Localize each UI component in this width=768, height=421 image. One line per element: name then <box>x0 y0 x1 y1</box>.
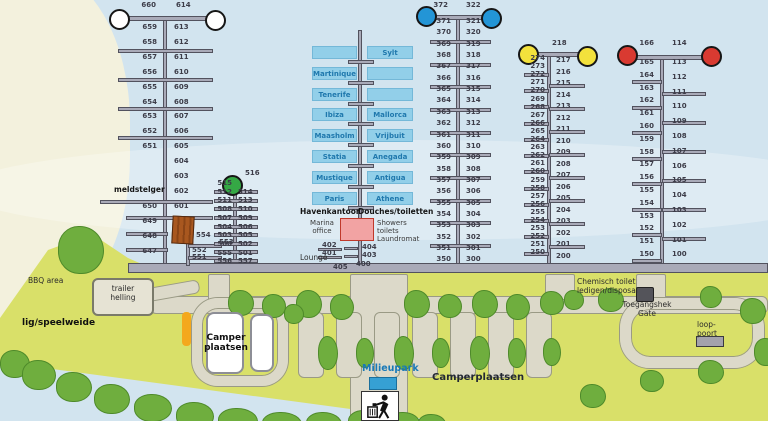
tree <box>432 338 450 368</box>
berth-number: 110 <box>672 103 694 110</box>
berth-number: 361 <box>429 132 451 139</box>
berth-number: 370 <box>429 29 451 36</box>
pier-names-finger <box>348 143 374 147</box>
berth-number: 256 <box>523 201 545 208</box>
berth-number: 152 <box>632 225 654 232</box>
tree <box>56 372 92 402</box>
label-showers: Showers toilets Laundromat <box>377 219 419 243</box>
orange-marker <box>182 312 191 346</box>
berth-name-box: Athene <box>367 192 413 205</box>
berth-number: 158 <box>632 149 654 156</box>
berth-number: 513 <box>238 197 260 204</box>
pier-100-finger <box>632 182 662 186</box>
berth-number: 213 <box>556 103 578 110</box>
pier-names-finger <box>348 81 374 85</box>
tree <box>754 338 768 366</box>
berth-number: 155 <box>632 187 654 194</box>
tree <box>22 360 56 390</box>
berth-number: 502 <box>238 241 260 248</box>
berth-number: 254 <box>523 217 545 224</box>
berth-number: 104 <box>672 192 694 199</box>
berth-number: 209 <box>556 149 578 156</box>
berth-number: 369 <box>429 41 451 48</box>
berth-number: 366 <box>429 75 451 82</box>
label-berth-553: 553 <box>219 239 234 246</box>
tree <box>438 294 462 318</box>
berth-number: 613 <box>174 24 196 31</box>
berth-number: 321 <box>466 18 488 25</box>
label-berth-401: 401 <box>322 250 337 257</box>
berth-number: 508 <box>210 206 232 213</box>
harbor-office-building <box>340 218 374 241</box>
berth-number: 501 <box>238 250 260 257</box>
berth-number: 250 <box>523 249 545 256</box>
berth-number: 102 <box>672 222 694 229</box>
berth-number: 162 <box>632 97 654 104</box>
berth-number: 510 <box>238 206 260 213</box>
berth-number: 200 <box>556 253 578 260</box>
label-marina-office: Marina office <box>306 219 338 235</box>
berth-number: 112 <box>672 74 694 81</box>
pier-600-head-number: 660 <box>134 2 156 9</box>
berth-number: 611 <box>174 54 196 61</box>
label-milieupark: Milieupark <box>362 364 419 374</box>
berth-number: 601 <box>174 203 196 210</box>
pier-600-finger <box>118 107 213 111</box>
berth-number: 514 <box>238 189 260 196</box>
berth-number: 318 <box>466 52 488 59</box>
berth-number: 151 <box>632 238 654 245</box>
label-berth-402: 402 <box>322 242 337 249</box>
berth-number: 607 <box>174 113 196 120</box>
berth-name-box <box>367 88 413 101</box>
berth-number: 363 <box>429 109 451 116</box>
berth-number: 204 <box>556 207 578 214</box>
berth-number: 507 <box>210 215 232 222</box>
berth-number: 655 <box>135 84 157 91</box>
small-dock-bar <box>344 255 358 258</box>
berth-number: 301 <box>466 245 488 252</box>
tree <box>318 336 338 370</box>
berth-number: 205 <box>556 195 578 202</box>
berth-number: 609 <box>174 84 196 91</box>
berth-number: 113 <box>672 59 694 66</box>
berth-number: 203 <box>556 218 578 225</box>
berth-number: 159 <box>632 136 654 143</box>
berth-number: 351 <box>429 245 451 252</box>
berth-name-box: Maasholm <box>312 129 357 142</box>
pier-600-finger <box>118 49 213 53</box>
label-bbq-area: BBQ area <box>28 276 63 285</box>
berth-number: 311 <box>466 132 488 139</box>
berth-number: 368 <box>429 52 451 59</box>
berth-number: 160 <box>632 123 654 130</box>
berth-number: 606 <box>174 128 196 135</box>
pier-names-finger <box>348 164 374 168</box>
berth-name-box: Antigua <box>367 171 413 184</box>
berth-number: 305 <box>466 200 488 207</box>
berth-number: 656 <box>135 69 157 76</box>
berth-number: 515 <box>210 180 232 187</box>
tree <box>540 291 564 315</box>
pier-600-finger <box>118 78 213 82</box>
berth-number: 268 <box>523 104 545 111</box>
berth-number: 658 <box>135 39 157 46</box>
berth-number: 101 <box>672 237 694 244</box>
berth-number: 251 <box>523 241 545 248</box>
berth-name-box <box>312 46 357 59</box>
berth-number: 506 <box>238 224 260 231</box>
berth-number: 156 <box>632 174 654 181</box>
berth-name-box: Mallorca <box>367 108 413 121</box>
waste-disposal-icon <box>361 391 399 421</box>
tree <box>306 412 342 421</box>
berth-number: 211 <box>556 126 578 133</box>
tree <box>330 294 354 320</box>
berth-number: 657 <box>135 54 157 61</box>
berth-number: 603 <box>174 173 196 180</box>
berth-number: 210 <box>556 138 578 145</box>
berth-name-box: Sylt <box>367 46 413 59</box>
berth-number: 271 <box>523 79 545 86</box>
berth-number: 264 <box>523 136 545 143</box>
berth-number: 262 <box>523 152 545 159</box>
berth-number: 157 <box>632 161 654 168</box>
berth-number: 154 <box>632 200 654 207</box>
berth-number: 649 <box>135 218 157 225</box>
label-havenkantoor: Havenkantoor <box>300 208 360 217</box>
tree <box>700 286 722 308</box>
berth-name-box: Vrijbuit <box>367 129 413 142</box>
berth-number: 212 <box>556 115 578 122</box>
berth-number: 216 <box>556 69 578 76</box>
berth-number: 602 <box>174 188 196 195</box>
berth-name-box: Tenerife <box>312 88 357 101</box>
berth-number: 109 <box>672 118 694 125</box>
berth-number: 105 <box>672 177 694 184</box>
berth-number: 358 <box>429 166 451 173</box>
tree <box>472 290 498 318</box>
label-camper-plaatsen-left: Camper plaatsen <box>198 333 254 353</box>
label-berth-554: 554 <box>196 232 211 239</box>
berth-number: 217 <box>556 57 578 64</box>
pier-names-finger <box>348 60 374 64</box>
berth-number: 555 <box>210 250 232 257</box>
tree <box>94 384 130 414</box>
berth-number: 313 <box>466 109 488 116</box>
label-douches-toiletten: Douches/toiletten <box>358 208 433 217</box>
berth-name-box: Mustique <box>312 171 357 184</box>
berth-number: 253 <box>523 225 545 232</box>
berth-number: 111 <box>672 89 694 96</box>
berth-name-box: Ibiza <box>312 108 357 121</box>
berth-number: 274 <box>523 55 545 62</box>
berth-number: 320 <box>466 29 488 36</box>
berth-number: 652 <box>135 128 157 135</box>
marina-map: 6606146596586576566556546536526516506496… <box>0 0 768 421</box>
label-toegangshek-gate: Toegangshek Gate <box>616 300 678 318</box>
berth-number: 509 <box>238 215 260 222</box>
berth-number: 263 <box>523 144 545 151</box>
berth-number: 356 <box>429 188 451 195</box>
tree <box>640 370 664 392</box>
pier-600-walkway <box>163 18 167 264</box>
berth-number: 270 <box>523 87 545 94</box>
pier-100-head-number: 114 <box>672 40 694 47</box>
berth-number: 100 <box>672 251 694 258</box>
berth-number: 272 <box>523 71 545 78</box>
berth-number: 362 <box>429 120 451 127</box>
berth-number: 371 <box>429 18 451 25</box>
berth-number: 302 <box>466 234 488 241</box>
berth-number: 359 <box>429 154 451 161</box>
berth-number: 206 <box>556 184 578 191</box>
berth-number: 317 <box>466 63 488 70</box>
berth-number: 653 <box>135 113 157 120</box>
berth-number: 260 <box>523 168 545 175</box>
berth-number: 556 <box>210 258 232 265</box>
berth-number: 307 <box>466 177 488 184</box>
berth-number: 355 <box>429 200 451 207</box>
tree <box>284 304 304 324</box>
pier-100-head-number: 166 <box>632 40 654 47</box>
berth-name-box: Statia <box>312 150 357 163</box>
milieupark-container <box>369 377 397 390</box>
berth-number: 208 <box>556 161 578 168</box>
tree <box>470 336 490 370</box>
berth-number: 259 <box>523 177 545 184</box>
berth-number: 610 <box>174 69 196 76</box>
berth-number: 107 <box>672 148 694 155</box>
berth-number: 319 <box>466 41 488 48</box>
berth-name-box: Martinique <box>312 67 357 80</box>
berth-number: 303 <box>466 222 488 229</box>
berth-number: 352 <box>429 234 451 241</box>
berth-number: 659 <box>135 24 157 31</box>
berth-number: 504 <box>210 224 232 231</box>
berth-number: 314 <box>466 97 488 104</box>
berth-number: 304 <box>466 211 488 218</box>
pier-100-finger <box>632 259 662 263</box>
tree <box>508 338 526 368</box>
small-dock-bar <box>344 247 358 250</box>
pier-600-end-marker <box>109 9 130 30</box>
berth-number: 605 <box>174 143 196 150</box>
berth-number: 267 <box>523 112 545 119</box>
pier-600-finger <box>118 136 213 140</box>
berth-number: 306 <box>466 188 488 195</box>
tree <box>698 360 724 384</box>
berth-number: 612 <box>174 39 196 46</box>
pier-100-end-marker <box>701 46 722 67</box>
berth-number: 604 <box>174 158 196 165</box>
berth-number: 357 <box>429 177 451 184</box>
label-berth-403: 403 <box>362 252 377 259</box>
berth-number: 360 <box>429 143 451 150</box>
pier-200-head-number: 218 <box>552 40 574 47</box>
berth-number: 252 <box>523 233 545 240</box>
label-berth-400: 400 <box>356 261 371 268</box>
berth-number: 266 <box>523 120 545 127</box>
berth-number: 308 <box>466 166 488 173</box>
berth-number: 350 <box>429 256 451 263</box>
berth-number: 365 <box>429 86 451 93</box>
berth-number: 214 <box>556 92 578 99</box>
pier-300-head-number: 372 <box>426 2 448 9</box>
tree <box>134 394 172 421</box>
berth-number: 103 <box>672 207 694 214</box>
tree <box>176 402 214 421</box>
berth-number: 654 <box>135 99 157 106</box>
label-meldstelger: meldstelger <box>114 186 165 195</box>
berth-number: 257 <box>523 193 545 200</box>
berth-number: 265 <box>523 128 545 135</box>
berth-number: 648 <box>135 233 157 240</box>
berth-number: 161 <box>632 110 654 117</box>
berth-number: 258 <box>523 185 545 192</box>
berth-number: 310 <box>466 143 488 150</box>
berth-number: 106 <box>672 163 694 170</box>
berth-number: 557 <box>238 258 260 265</box>
berth-number: 215 <box>556 80 578 87</box>
pier-300-head-number: 322 <box>466 2 488 9</box>
berth-number: 315 <box>466 86 488 93</box>
label-speelweide: lig/speelweide <box>22 318 95 328</box>
berth-name-box: Anegada <box>367 150 413 163</box>
pier-600-head-number: 614 <box>176 2 198 9</box>
berth-number: 505 <box>238 232 260 239</box>
pier-names-finger <box>348 185 374 189</box>
berth-number: 150 <box>632 251 654 258</box>
label-trailer-helling: trailer helling <box>98 284 148 302</box>
label-berth-405: 405 <box>333 264 348 271</box>
berth-number: 367 <box>429 63 451 70</box>
berth-number: 511 <box>210 197 232 204</box>
berth-number: 255 <box>523 209 545 216</box>
berth-number: 153 <box>632 213 654 220</box>
berth-number: 312 <box>466 120 488 127</box>
berth-number: 164 <box>632 72 654 79</box>
berth-number: 300 <box>466 256 488 263</box>
berth-number: 273 <box>523 63 545 70</box>
berth-number: 163 <box>632 85 654 92</box>
tree <box>580 384 606 408</box>
berth-name-box <box>367 67 413 80</box>
berth-number: 650 <box>135 203 157 210</box>
tree <box>506 294 530 320</box>
pier-names-finger <box>348 122 374 126</box>
berth-name-box: Paris <box>312 192 357 205</box>
berth-number: 108 <box>672 133 694 140</box>
berth-number: 261 <box>523 160 545 167</box>
pier-100-finger <box>632 208 662 212</box>
berth-number: 269 <box>523 96 545 103</box>
berth-number: 512 <box>210 189 232 196</box>
berth-number: 647 <box>135 248 157 255</box>
berth-number: 651 <box>135 143 157 150</box>
tree <box>218 408 258 421</box>
label-berth-551: 551 <box>192 254 207 261</box>
tree <box>404 290 430 318</box>
tree <box>58 226 104 274</box>
berth-number: 201 <box>556 241 578 248</box>
berth-number: 364 <box>429 97 451 104</box>
pier-200-end-marker <box>577 46 598 67</box>
berth-number: 202 <box>556 230 578 237</box>
tree <box>262 412 302 421</box>
pier-600-end-marker <box>205 10 226 31</box>
harbor-shed <box>171 215 194 244</box>
label-camperplaatsen: Camperplaatsen <box>432 372 524 383</box>
pier-100-finger <box>632 131 662 135</box>
berth-number: 608 <box>174 99 196 106</box>
tree <box>740 298 766 324</box>
pier-500-head-number: 516 <box>245 170 267 177</box>
berth-number: 165 <box>632 59 654 66</box>
trash-person-icon <box>362 392 398 420</box>
pier-100-finger <box>632 80 662 84</box>
berth-number: 316 <box>466 75 488 82</box>
pier-names-finger <box>348 102 374 106</box>
berth-number: 309 <box>466 154 488 161</box>
pier-100-finger <box>632 233 662 237</box>
berth-number: 207 <box>556 172 578 179</box>
label-berth-404: 404 <box>362 244 377 251</box>
pier-300-walkway <box>456 17 460 264</box>
label-loop-poort: loop- poort <box>697 320 717 338</box>
tree <box>543 338 561 366</box>
berth-number: 353 <box>429 222 451 229</box>
label-chemisch-toilet: Chemisch toilet ledigen/disposal <box>577 277 638 295</box>
